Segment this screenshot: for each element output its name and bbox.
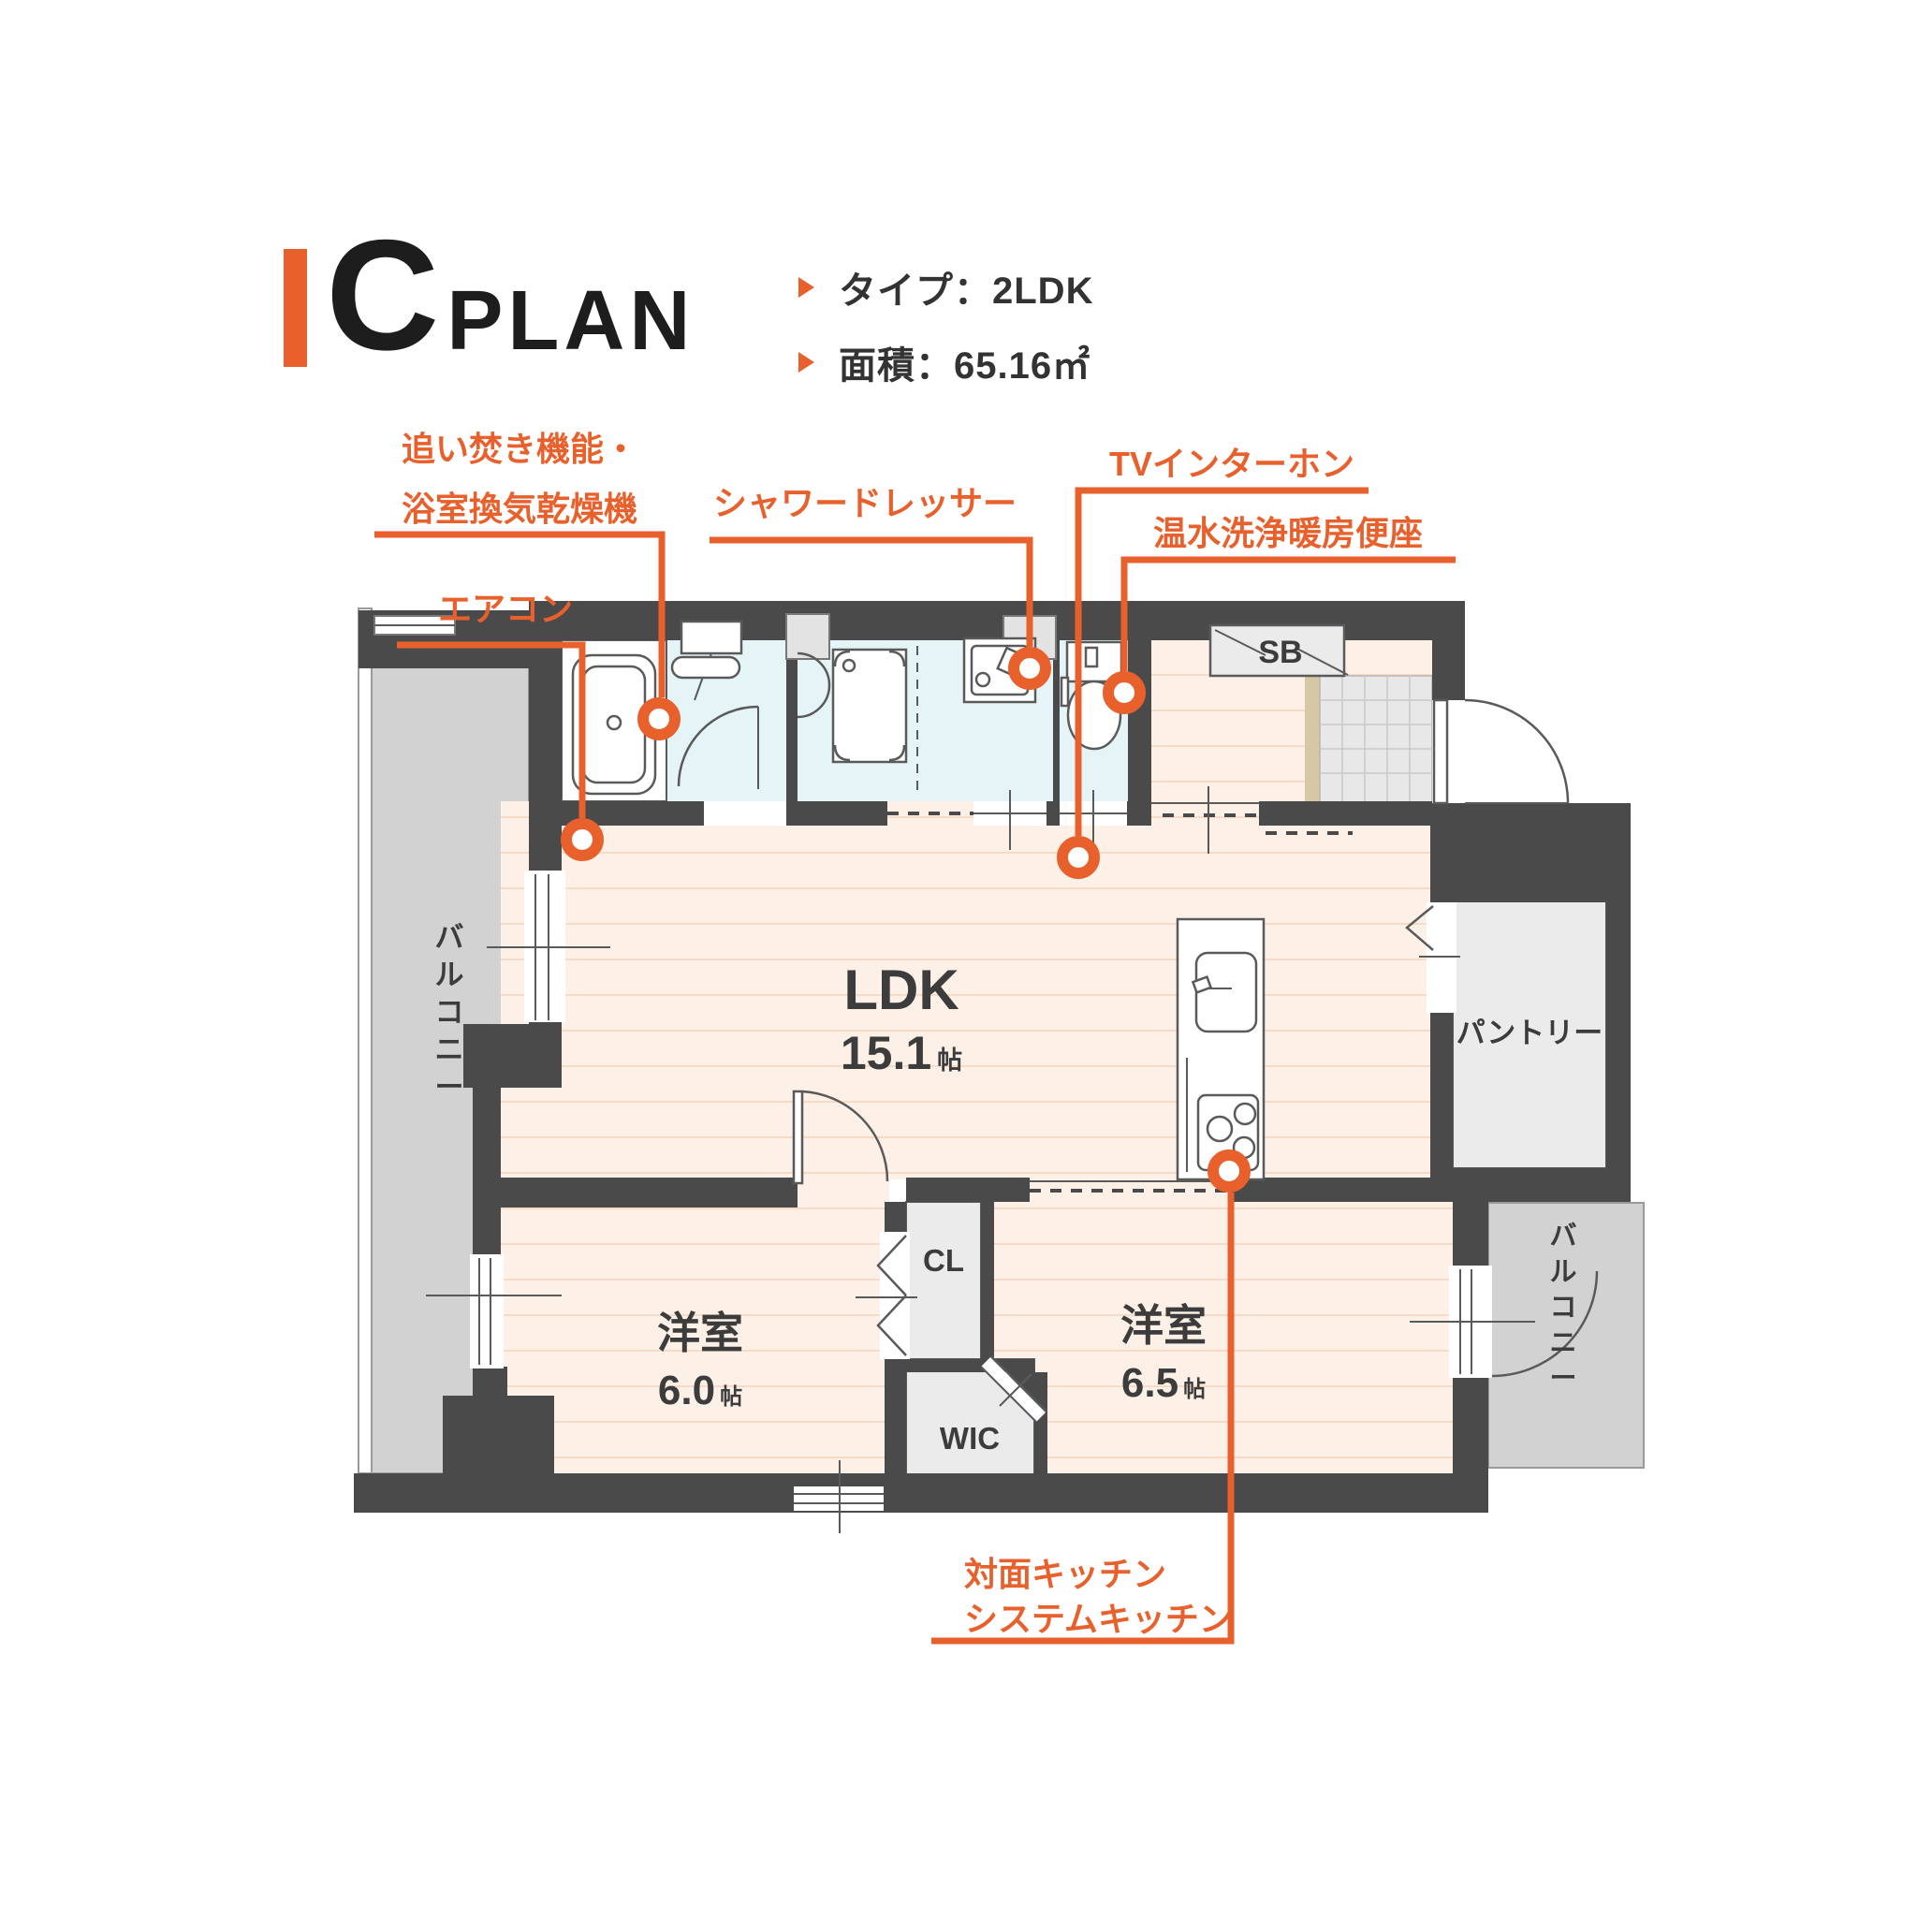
entrance-step bbox=[1305, 676, 1320, 803]
marker-shower-dresser bbox=[1014, 652, 1046, 684]
pantry-label: パントリー bbox=[1456, 1017, 1603, 1049]
marker-aircon bbox=[566, 824, 598, 856]
marker-washlet bbox=[1108, 677, 1140, 709]
callout-bath-reheat-line2: 浴室換気乾燥機 bbox=[402, 490, 637, 528]
callout-aircon-text: エアコン bbox=[438, 590, 573, 628]
closet-floor bbox=[906, 1202, 981, 1359]
marker-kitchen bbox=[1213, 1155, 1245, 1187]
floor-plan-drawing: SB LDK 15.1帖 洋室 6.0帖 bbox=[0, 0, 1932, 1932]
balcony-left-label: バルコニー bbox=[435, 921, 464, 1104]
callout-tv-intercom-text: TVインターホン bbox=[1109, 445, 1354, 483]
shoe-box: SB bbox=[1210, 625, 1348, 676]
closet-label: CL bbox=[923, 1243, 964, 1278]
callout-shower-dresser-text: シャワードレッサー bbox=[713, 484, 1017, 522]
floor-plan-page: C PLAN タイプ：2LDK 面積：65.16㎡ bbox=[0, 0, 1932, 1932]
wic-label: WIC bbox=[940, 1421, 1000, 1456]
callout-kitchen-line1: 対面キッチン bbox=[964, 1555, 1166, 1593]
callout-bath-reheat-line1: 追い焚き機能・ bbox=[402, 430, 637, 468]
bedroom-west-label: 洋室 bbox=[657, 1309, 743, 1357]
bedroom-east-label: 洋室 bbox=[1120, 1301, 1207, 1350]
entrance-tile bbox=[1320, 676, 1432, 803]
marker-tv-intercom bbox=[1062, 842, 1094, 873]
ldk-floor bbox=[501, 801, 1430, 1179]
callout-washlet-text: 温水洗浄暖房便座 bbox=[1153, 514, 1423, 552]
kitchen-counter-icon bbox=[1178, 919, 1264, 1179]
callout-kitchen-line2: システムキッチン bbox=[964, 1600, 1233, 1638]
washing-machine-pan-icon bbox=[833, 650, 906, 762]
balcony-right-label: バルコニー bbox=[1549, 1222, 1576, 1394]
shoe-box-label: SB bbox=[1258, 635, 1302, 670]
ldk-label: LDK bbox=[843, 959, 959, 1021]
marker-bath-reheat bbox=[643, 703, 675, 735]
